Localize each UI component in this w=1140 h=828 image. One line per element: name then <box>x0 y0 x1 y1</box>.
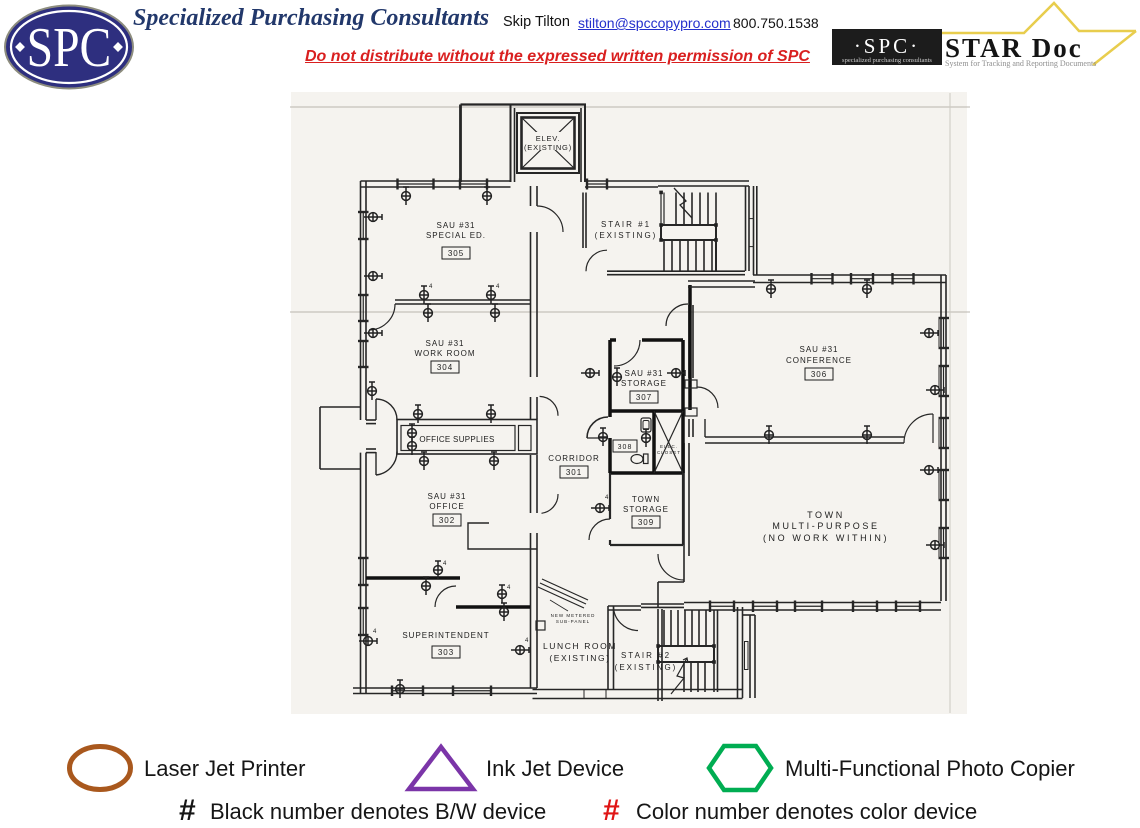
svg-text:ELEC.: ELEC. <box>660 444 678 449</box>
svg-text:SAU #31: SAU #31 <box>624 369 663 378</box>
svg-text:CORRIDOR: CORRIDOR <box>548 454 600 463</box>
svg-text:TOWN: TOWN <box>632 495 660 504</box>
svg-text:SAU #31: SAU #31 <box>425 339 464 348</box>
svg-text:STAIR #2: STAIR #2 <box>621 651 671 660</box>
svg-text:308: 308 <box>618 444 633 451</box>
svg-text:·SPC·: ·SPC· <box>854 34 920 58</box>
svg-text:Multi-Functional Photo Copier: Multi-Functional Photo Copier <box>785 756 1075 781</box>
svg-text:WORK ROOM: WORK ROOM <box>415 349 476 358</box>
svg-text:STORAGE: STORAGE <box>623 505 669 514</box>
svg-text:(EXISTING): (EXISTING) <box>615 663 678 672</box>
svg-text:Black number denotes B/W devic: Black number denotes B/W device <box>210 799 546 824</box>
svg-text:304: 304 <box>437 363 453 372</box>
svg-text:306: 306 <box>811 370 827 379</box>
svg-text:STORAGE: STORAGE <box>621 379 667 388</box>
svg-text:CONFERENCE: CONFERENCE <box>786 356 852 365</box>
svg-text:(EXISTING): (EXISTING) <box>524 143 572 152</box>
svg-text:SUB-PANEL: SUB-PANEL <box>556 619 590 624</box>
svg-text:OFFICE: OFFICE <box>429 502 464 511</box>
svg-text:MULTI-PURPOSE: MULTI-PURPOSE <box>772 521 879 531</box>
svg-text:301: 301 <box>566 468 582 477</box>
svg-text:302: 302 <box>439 516 455 525</box>
svg-text:CLOSET: CLOSET <box>657 450 681 455</box>
svg-text:#: # <box>603 794 620 827</box>
svg-text:System for Tracking and Report: System for Tracking and Reporting Docume… <box>945 59 1096 68</box>
svg-text:(EXISTING): (EXISTING) <box>549 653 610 663</box>
svg-text:STAIR #1: STAIR #1 <box>601 220 651 229</box>
svg-text:Color number denotes color dev: Color number denotes color device <box>636 799 977 824</box>
svg-text:303: 303 <box>438 648 454 657</box>
svg-text:OFFICE SUPPLIES: OFFICE SUPPLIES <box>419 435 494 444</box>
svg-text:309: 309 <box>638 518 654 527</box>
svg-text:SUPERINTENDENT: SUPERINTENDENT <box>402 631 489 640</box>
svg-text:#: # <box>179 794 196 827</box>
svg-text:Laser Jet Printer: Laser Jet Printer <box>144 756 305 781</box>
svg-text:NEW METERED: NEW METERED <box>551 613 596 618</box>
svg-text:specialized purchasing consult: specialized purchasing consultants <box>842 57 932 64</box>
svg-text:SPECIAL ED.: SPECIAL ED. <box>426 231 486 240</box>
svg-text:ELEV.: ELEV. <box>536 134 561 143</box>
svg-text:TOWN: TOWN <box>807 510 845 520</box>
svg-text:SAU #31: SAU #31 <box>436 221 475 230</box>
svg-text:LUNCH ROOM: LUNCH ROOM <box>543 641 617 651</box>
svg-text:(EXISTING): (EXISTING) <box>595 231 658 240</box>
svg-text:(NO WORK WITHIN): (NO WORK WITHIN) <box>763 533 889 543</box>
svg-text:Ink Jet Device: Ink Jet Device <box>486 756 624 781</box>
svg-text:307: 307 <box>636 393 652 402</box>
svg-text:SAU #31: SAU #31 <box>799 345 838 354</box>
svg-text:SPC: SPC <box>27 18 112 79</box>
svg-text:SAU #31: SAU #31 <box>427 492 466 501</box>
svg-text:305: 305 <box>448 249 464 258</box>
